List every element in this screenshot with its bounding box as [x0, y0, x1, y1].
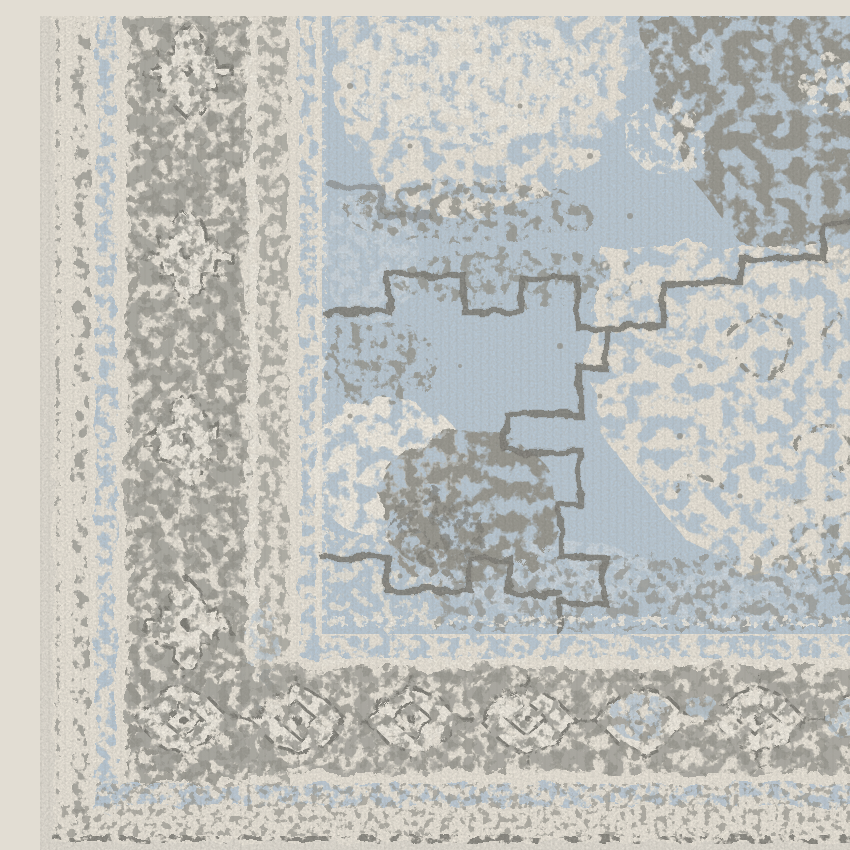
photo-grain-overlay: [40, 16, 850, 850]
rug-product-photo: [40, 16, 850, 850]
rug-photo-canvas: [40, 16, 850, 850]
